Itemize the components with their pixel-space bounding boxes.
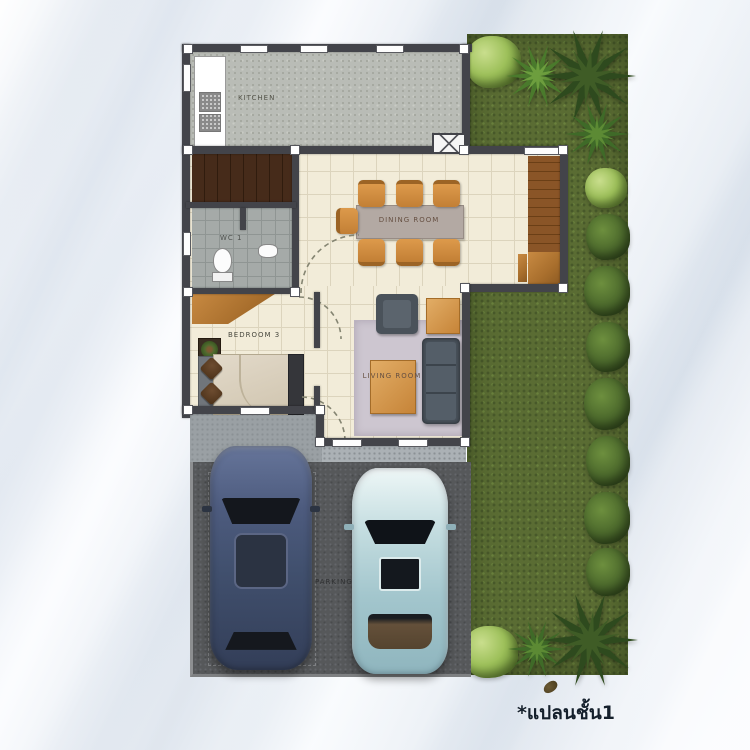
door-swing-arc — [298, 296, 342, 340]
window-marker — [300, 45, 328, 53]
sofa-cushions — [426, 342, 456, 420]
armchair-seat — [383, 300, 411, 328]
sink-icon — [258, 244, 278, 258]
window-marker — [240, 407, 270, 415]
entry-step — [322, 446, 466, 462]
plan-caption: *แปลนชั้น1 — [517, 698, 615, 728]
wall — [182, 146, 567, 154]
deck-step — [528, 252, 561, 284]
side-table — [426, 298, 460, 334]
light-blue-sedan-car — [352, 468, 448, 674]
window-marker — [398, 439, 428, 447]
deck-ladder — [518, 254, 527, 282]
dining-chair — [433, 180, 460, 207]
corner-post — [315, 437, 325, 447]
coffee-table — [370, 360, 416, 414]
window-marker — [183, 64, 191, 92]
car-mirror — [446, 524, 456, 530]
corner-post — [459, 145, 469, 155]
car-mirror — [202, 506, 212, 512]
parking-label: PARKING — [315, 578, 353, 586]
wood-deck — [528, 156, 561, 252]
bush-icon — [584, 266, 630, 316]
floor-plan-image: KITCHEN DINING ROOM WC 1 BEDROOM 3 LIVIN… — [0, 0, 750, 750]
car-windshield — [364, 520, 437, 545]
dining-chair — [336, 208, 358, 234]
bedroom-label: BEDROOM 3 — [228, 331, 280, 339]
corner-post — [183, 145, 193, 155]
toilet-icon — [213, 248, 232, 273]
armchair — [376, 294, 418, 334]
corner-post — [558, 145, 568, 155]
bush-icon — [586, 214, 630, 260]
dining-chair — [396, 180, 423, 207]
window-marker — [240, 45, 268, 53]
wall — [182, 44, 190, 418]
dining-chair — [433, 239, 460, 266]
bush-icon — [586, 322, 630, 372]
bush-icon — [586, 548, 630, 596]
palm-tree-icon — [542, 592, 638, 688]
kitchen-room — [190, 52, 464, 148]
bush-icon — [586, 436, 630, 486]
dining-chair — [396, 239, 423, 266]
toilet-icon — [212, 272, 233, 282]
window-marker — [332, 439, 362, 447]
wall — [292, 146, 299, 296]
window-marker — [376, 45, 404, 53]
wall — [462, 284, 470, 446]
car-mirror — [310, 506, 320, 512]
car-sunroof — [379, 557, 421, 592]
car-windshield — [221, 498, 301, 525]
dining-chair — [358, 239, 385, 266]
dining-chair — [358, 180, 385, 207]
door-swing-arc — [300, 234, 360, 294]
window-marker — [183, 232, 191, 256]
bush-icon — [585, 168, 627, 208]
wall — [462, 284, 568, 292]
corner-post — [183, 405, 193, 415]
car-rear-window — [225, 632, 296, 650]
staircase — [192, 152, 296, 206]
wall — [186, 288, 298, 294]
corner-post — [460, 283, 470, 293]
wc-partition — [240, 208, 246, 230]
wc-label: WC 1 — [220, 234, 243, 242]
corner-post — [290, 145, 300, 155]
palm-tree-icon — [564, 102, 630, 166]
car-roof-glass — [234, 533, 287, 589]
bush-icon — [584, 378, 630, 430]
wall — [314, 292, 320, 348]
corner-post — [558, 283, 568, 293]
corner-post — [460, 437, 470, 447]
corner-post — [183, 44, 193, 54]
corner-post — [183, 287, 193, 297]
stove-icon — [199, 114, 221, 132]
blue-suv-car — [210, 446, 312, 670]
corner-post — [459, 44, 469, 54]
car-rear-window — [368, 614, 431, 649]
wall — [560, 146, 568, 292]
bush-icon — [584, 492, 630, 544]
sink-icon — [199, 92, 221, 112]
window-marker — [524, 147, 560, 155]
dining-room-label: DINING ROOM — [356, 216, 462, 224]
corner-post — [315, 405, 325, 415]
living-room-label: LIVING ROOM — [362, 372, 422, 380]
car-mirror — [344, 524, 354, 530]
corner-post — [290, 287, 300, 297]
sofa — [422, 338, 460, 424]
kitchen-label: KITCHEN — [238, 94, 275, 102]
